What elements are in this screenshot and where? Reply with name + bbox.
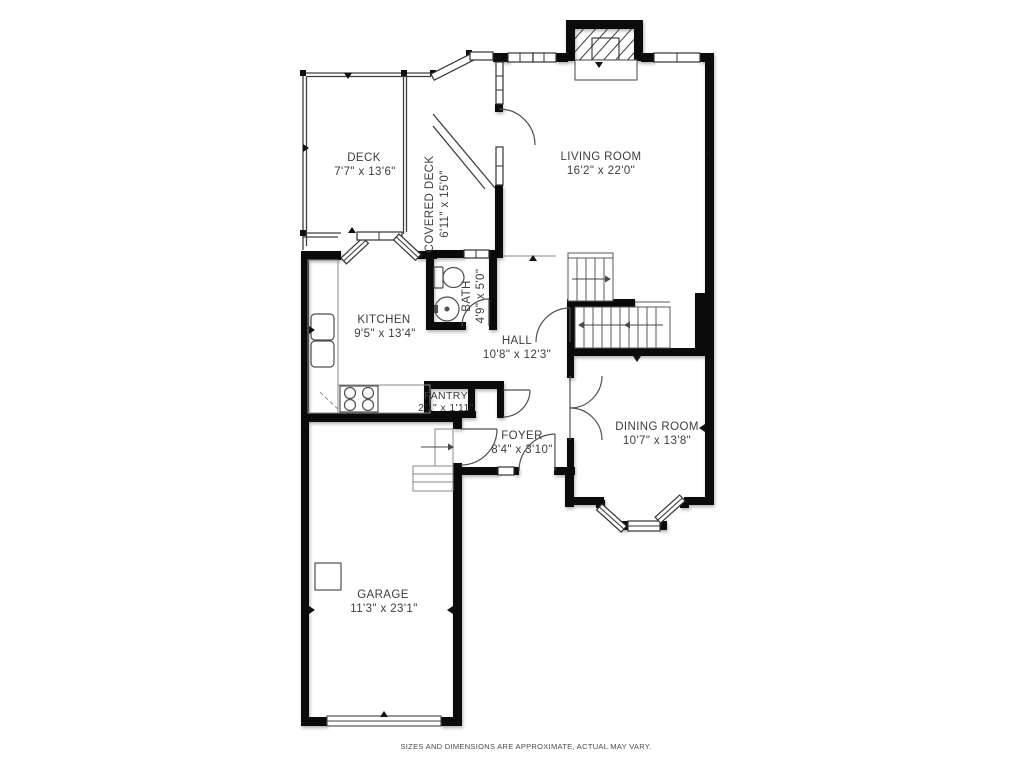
hall-stair-door — [536, 308, 570, 342]
pantry-dims: 2'1" x 1'11" — [418, 402, 474, 414]
foyer-closet-door — [503, 390, 530, 417]
foyer-dims: 8'4" x 3'10" — [491, 444, 552, 456]
bath-sink — [434, 297, 459, 321]
utility-unit — [315, 563, 341, 590]
foyer-label: FOYER — [501, 430, 543, 442]
garage-label: GARAGE — [357, 589, 409, 601]
dining-room-label: DINING ROOM — [615, 421, 699, 433]
room-labels: DECK 7'7" x 13'6" COVERED DECK 6'11" x 1… — [334, 151, 699, 615]
kitchen-label: KITCHEN — [357, 314, 410, 326]
hall-dims: 10'8" x 12'3" — [483, 349, 551, 361]
floorplan-svg: DECK 7'7" x 13'6" COVERED DECK 6'11" x 1… — [0, 0, 1024, 768]
toilet — [434, 267, 464, 288]
deck-outline — [300, 50, 495, 250]
pantry-label: PANTRY — [424, 390, 468, 402]
walls — [301, 20, 714, 726]
bath-fixtures — [434, 267, 464, 321]
deck-label: DECK — [347, 152, 381, 164]
covered-deck-label: COVERED DECK — [424, 156, 436, 253]
hearth — [575, 60, 637, 80]
fireplace-walls — [566, 20, 643, 61]
deck-dims: 7'7" x 13'6" — [334, 166, 395, 178]
living-room-label: LIVING ROOM — [560, 151, 641, 163]
hall-label: HALL — [502, 335, 533, 347]
floorplan-canvas: DECK 7'7" x 13'6" COVERED DECK 6'11" x 1… — [0, 0, 1024, 768]
dining-french-door-bottom — [570, 408, 602, 440]
covered-deck-dims: 6'11" x 15'0" — [439, 170, 451, 237]
garage-steps — [413, 429, 454, 491]
garage-dims: 11'3" x 23'1" — [350, 603, 417, 615]
living-room-dims: 16'2" x 22'0" — [567, 165, 635, 177]
cooktop — [340, 386, 378, 412]
disclaimer-text: SIZES AND DIMENSIONS ARE APPROXIMATE, AC… — [401, 742, 652, 751]
kitchen-sink — [311, 314, 334, 340]
bath-dims: 4'9" x 5'0" — [475, 269, 487, 324]
dining-room-dims: 10'7" x 13'8" — [623, 435, 691, 447]
garage-fixtures — [315, 429, 454, 726]
kitchen-dims: 9'5" x 13'4" — [354, 328, 415, 340]
dining-french-door-top — [570, 376, 602, 408]
garage-door — [327, 716, 441, 726]
living-room-deck-door — [499, 109, 535, 145]
bath-label: BATH — [461, 280, 473, 311]
